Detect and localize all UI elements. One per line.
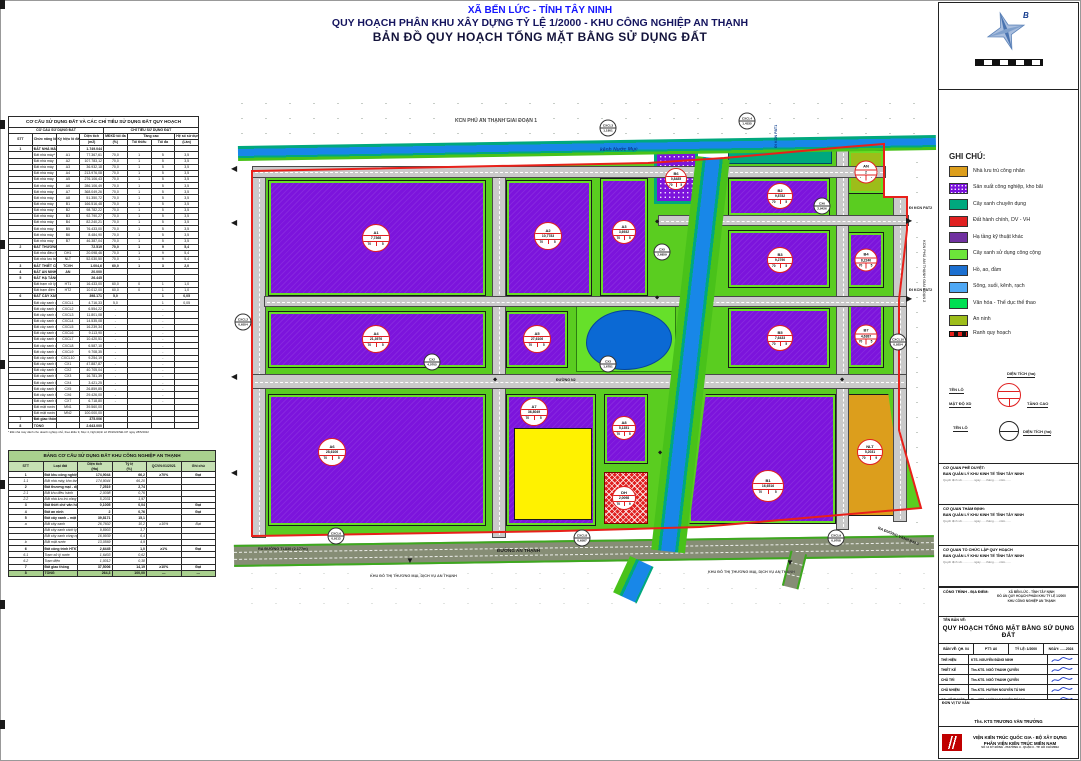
signature-cell bbox=[1048, 675, 1078, 684]
approval-org: BAN QUẢN LÝ KHU KINH TẾ TỈNH TÂY NINH bbox=[943, 472, 1074, 476]
lot-area: 1,6781 bbox=[601, 365, 616, 369]
drawing-meta-row: BẢN VẼ: QH. 04PTT: A0TỶ LỆ: 1/2000NGÀY: … bbox=[938, 643, 1079, 654]
lot-label-nlt: NLT 5,2031 709 bbox=[857, 439, 883, 465]
lot-label-cxcl2: CXCL2 0,6554 bbox=[235, 314, 252, 331]
approval-label: CƠ QUAN THẨM ĐỊNH: bbox=[943, 507, 1074, 511]
plan-sheet: A1 7,7368 705A2 10,7783 705A3 3,6932 705… bbox=[0, 0, 1081, 761]
lot-density-floors: 705 bbox=[521, 416, 547, 420]
legend-swatch bbox=[949, 183, 968, 194]
lot-label-cx6: CX6 2,9426 bbox=[814, 198, 831, 215]
title-project: QUY HOẠCH PHÂN KHU XÂY DỰNG TỶ LỆ 1/2000… bbox=[260, 17, 820, 29]
road-horizontal-north bbox=[252, 166, 886, 178]
title-drawing: BẢN ĐỒ QUY HOẠCH TỔNG MẶT BẰNG SỬ DỤNG Đ… bbox=[260, 30, 820, 44]
institute-box: VIỆN KIẾN TRÚC QUỐC GIA - BỘ XÂY DỰNG PH… bbox=[938, 726, 1079, 759]
signature-row: THIẾT KẾ Ths.KTS. NGÔ THANH QUYỀN bbox=[939, 664, 1078, 674]
lot-area: 0,6554 bbox=[236, 323, 251, 327]
signature-name: Ths.KTS. HUỲNH NGUYỄN TÚ NHI bbox=[969, 685, 1048, 694]
institute-logo-icon bbox=[942, 734, 962, 751]
road-horizontal-mid bbox=[264, 296, 907, 307]
signature-rows: THỂ HIỆN KTS. NGUYỄN ĐĂNG NINH THIẾT KẾ … bbox=[938, 654, 1079, 699]
lot-density-floors: 705 bbox=[535, 240, 561, 244]
lot-area: 2,6859 bbox=[655, 253, 670, 257]
sheet-edge-ticks bbox=[0, 0, 5, 761]
lot-density-floors: 705 bbox=[753, 490, 783, 494]
lot-area: 4,0705 bbox=[425, 363, 440, 367]
lot-label-a6: A6 28,6106 705 bbox=[318, 438, 346, 466]
label-di-kcn-pat2: ĐI KCN PAT2 bbox=[909, 206, 932, 210]
approval-label: CƠ QUAN TỔ CHỨC LẬP QUY HOẠCH bbox=[943, 548, 1074, 552]
legend-swatch bbox=[949, 232, 968, 243]
exit-arrow-icon: ▼ bbox=[786, 558, 794, 567]
approval-box: CƠ QUAN PHÊ DUYỆT: BAN QUẢN LÝ KHU KINH … bbox=[938, 463, 1079, 504]
legend-label: Văn hóa - Thể dục thể thao bbox=[973, 301, 1036, 307]
approval-box: CƠ QUAN TỔ CHỨC LẬP QUY HOẠCH BAN QUẢN L… bbox=[938, 545, 1079, 587]
lot-density-floors: 705 bbox=[363, 242, 389, 246]
signature-role: THIẾT KẾ bbox=[939, 665, 969, 674]
signature-role: THỂ HIỆN bbox=[939, 655, 969, 664]
lot-density-floors: 705 bbox=[666, 183, 686, 187]
lot-density-floors: 705 bbox=[768, 200, 792, 204]
legend-swatch bbox=[949, 315, 968, 326]
parcel-existing-factory bbox=[514, 428, 592, 520]
lot-label-a4: A4 21,3976 705 bbox=[362, 325, 390, 353]
lot-label-cxcl9: CXCL9 0,9708 bbox=[828, 530, 845, 547]
lot-label-dh: DH 2,0098 709 bbox=[612, 486, 636, 510]
legend-label: Đất hành chính, DV - VH bbox=[973, 218, 1030, 224]
institute-text: VIỆN KIẾN TRÚC QUỐC GIA - BỘ XÂY DỰNG PH… bbox=[965, 735, 1075, 749]
lot-label-cx5: CX5 2,6859 bbox=[654, 244, 671, 261]
lot-label-b3: B3 9,2790 705 bbox=[767, 247, 793, 273]
symbol-key-area2-label: DIỆN TÍCH (ha) bbox=[1023, 429, 1051, 436]
road-vertical-boundary-east bbox=[893, 197, 907, 522]
exit-arrow-icon: ▼ bbox=[406, 556, 414, 565]
lot-label-a3: A3 3,6932 705 bbox=[612, 220, 636, 244]
drawing-meta-cell: BẢN VẼ: QH. 04 bbox=[939, 644, 974, 654]
legend-label: Hồ, ao, đầm bbox=[973, 268, 1001, 274]
table2-title: BẢNG CƠ CẤU SỬ DỤNG ĐẤT KHU CÔNG NGHIỆP … bbox=[9, 451, 216, 462]
table1-footnote: * Đất nhà máy dành cho doanh nghiệp nhỏ,… bbox=[8, 430, 199, 434]
symbol-key-lot2-label: TÊN LÔ bbox=[953, 425, 968, 432]
label-kenh-nuoc-muc: kênh Nước Mục bbox=[600, 146, 638, 153]
exit-arrow-icon: ◀ bbox=[231, 468, 237, 477]
lot-label-a5: A5 27,6106 705 bbox=[523, 325, 551, 353]
lot-label-a7: A7 36,8049 705 bbox=[520, 398, 548, 426]
legend-swatch bbox=[949, 216, 968, 227]
lot-density-floors: 709 bbox=[613, 502, 635, 506]
road-vertical-east bbox=[836, 150, 849, 530]
parcel-a6 bbox=[268, 394, 486, 526]
lot-label-b6: B6 0,8485 705 bbox=[665, 168, 687, 190]
approval-dots: Quyết định số:..............ngày.......t… bbox=[943, 519, 1074, 523]
lot-label-cx2: CX2 4,0705 bbox=[424, 354, 441, 371]
lot-label-b4: B4 8,2240 705 bbox=[855, 249, 878, 272]
signature-name: Ths.KTS. NGÔ THANH QUYỀN bbox=[969, 665, 1048, 674]
lot-label-an: AN 2 -- bbox=[855, 161, 878, 184]
lot-area: 2,9426 bbox=[815, 207, 830, 211]
institute-line1: VIỆN KIẾN TRÚC QUỐC GIA - BỘ XÂY DỰNG bbox=[965, 735, 1075, 741]
approval-org: BAN QUẢN LÝ KHU KINH TẾ TỈNH TÂY NINH bbox=[943, 554, 1074, 558]
signature-name: KTS. NGUYỄN ĐĂNG NINH bbox=[969, 655, 1048, 664]
label-di-kcn-pat1: ĐI KCN PAT1 bbox=[774, 125, 778, 148]
lot-density-floors: 705 bbox=[768, 342, 792, 346]
symbol-key-floors-label: TẦNG CAO bbox=[1027, 401, 1048, 408]
drawing-name-box: TÊN BẢN VẼ: QUY HOẠCH TỔNG MẶT BẰNG SỬ D… bbox=[938, 616, 1079, 643]
drawing-meta-cell: TỶ LỆ: 1/2000 bbox=[1009, 644, 1044, 654]
consultant-name: Ths. KTS TRƯƠNG VĂN TRƯỞNG bbox=[939, 719, 1078, 724]
lot-density-floors: 705 bbox=[613, 236, 635, 240]
land-structure-table: BẢNG CƠ CẤU SỬ DỤNG ĐẤT KHU CÔNG NGHIỆP … bbox=[8, 450, 216, 577]
lot-label-a2: A2 10,7783 705 bbox=[534, 222, 562, 250]
signature bbox=[1050, 656, 1074, 664]
legend-item: Sản xuất công nghiệp, kho bãi bbox=[949, 183, 1070, 194]
signature-cell bbox=[1048, 665, 1078, 674]
consultant-label: ĐƠN VỊ TƯ VẤN bbox=[939, 700, 1078, 706]
lot-label-b7: B7 4,6387 705 bbox=[855, 325, 878, 348]
signature bbox=[1050, 686, 1074, 694]
signature-role: CHỦ TRÌ bbox=[939, 675, 969, 684]
approval-label: CƠ QUAN PHÊ DUYỆT: bbox=[943, 466, 1074, 470]
table-row: 8TỔNG264,3 100,00—— bbox=[9, 570, 216, 576]
drawing-meta-cell: PTT: A0 bbox=[974, 644, 1009, 654]
road-vertical-d2 bbox=[492, 168, 506, 538]
signature-row: CHỦ NHIỆM Ths.KTS. HUỲNH NGUYỄN TÚ NHI bbox=[939, 684, 1078, 694]
lot-density-floors: 705 bbox=[768, 264, 792, 268]
symbol-key-density-label: MẬT ĐỘ XD bbox=[949, 401, 971, 408]
lot-symbol-example bbox=[997, 383, 1021, 407]
label-khu-do-thi-2: KHU ĐÔ THỊ THƯƠNG MẠI, DỊCH VỤ AN THẠNH bbox=[708, 570, 795, 574]
title-commune: XÃ BẾN LỨC - TỈNH TÂY NINH bbox=[260, 5, 820, 16]
lot-density-floors: 705 bbox=[856, 264, 877, 268]
legend-label: Cây xanh chuyên dụng bbox=[973, 202, 1026, 208]
project-box: CÔNG TRÌNH - ĐỊA ĐIỂM: XÃ BẾN LỨC - TỈNH… bbox=[938, 587, 1079, 616]
label-khu-do-thi-1: KHU ĐÔ THỊ THƯƠNG MẠI, DỊCH VỤ AN THẠNH bbox=[370, 574, 457, 578]
right-column: B GHI CHÚ: Nhà lưu trú công nhânSản xuất… bbox=[938, 2, 1079, 759]
signature bbox=[1050, 666, 1074, 674]
exit-arrow-icon: ▶ bbox=[906, 294, 912, 303]
lot-area: 0,9113 bbox=[329, 537, 344, 541]
drawing-name: QUY HOẠCH TỔNG MẶT BẰNG SỬ DỤNG ĐẤT bbox=[939, 623, 1078, 642]
approval-dots: Quyết định số:..............ngày.......t… bbox=[943, 560, 1074, 564]
approval-dots: Quyết định số:..............ngày.......t… bbox=[943, 478, 1074, 482]
lot-label-b2: B2 9,8782 705 bbox=[767, 183, 793, 209]
legend-label: Sản xuất công nghiệp, kho bãi bbox=[973, 185, 1043, 191]
lot-label-cxcl10: CXCL10 0,9254 bbox=[890, 334, 907, 351]
institute-line3: SỐ 14 KỲ ĐỒNG - PHƯỜNG 9 - QUẬN 3 - TP. … bbox=[965, 746, 1075, 749]
label-duong-an-thanh: ĐƯỜNG AN THẠNH bbox=[497, 548, 540, 553]
legend-items: Nhà lưu trú công nhânSản xuất công nghiệ… bbox=[949, 166, 1070, 337]
signature-row: THỂ HIỆN KTS. NGUYỄN ĐĂNG NINH bbox=[939, 654, 1078, 664]
lot-label-b1: B1 16,6516 705 bbox=[752, 470, 784, 502]
label-kcn-phu-an-thanh-gd1: KCN PHÚ AN THẠNH GIAI ĐOẠN 1 bbox=[455, 118, 537, 124]
lot-label-cxcl8: CXCL8 0,6587 bbox=[574, 530, 591, 547]
lot-density-floors: 709 bbox=[858, 456, 882, 460]
project-lines: XÃ BẾN LỨC - TỈNH TÂY NINHĐỒ ÁN QUY HOẠC… bbox=[989, 590, 1074, 614]
lot-area: 1,1801 bbox=[601, 129, 616, 133]
legend-label: Ranh quy hoạch bbox=[973, 331, 1011, 337]
label-duong-n2: ĐƯỜNG N2 bbox=[556, 378, 576, 382]
legend-swatch bbox=[949, 298, 968, 309]
lot-area: 0,6587 bbox=[575, 539, 590, 543]
signature-name: Ths.KTS. NGÔ THANH QUYỀN bbox=[969, 675, 1048, 684]
lot-symbol-key: DIỆN TÍCH (ha) TÊN LÔ MẬT ĐỘ XD TẦNG CAO… bbox=[949, 371, 1070, 443]
lot-density-floors: 705 bbox=[363, 343, 389, 347]
lot-label-cxcl6: CXCL6 0,9113 bbox=[328, 528, 345, 545]
lot-density-floors: 705 bbox=[856, 340, 877, 344]
legend-swatch bbox=[949, 199, 968, 210]
land-use-indicator-table: CƠ CẤU SỬ DỤNG ĐẤT VÀ CÁC CHỈ TIÊU SỬ DỤ… bbox=[8, 116, 199, 434]
legend-item: Cây xanh chuyên dụng bbox=[949, 199, 1070, 210]
road-marker-icon: ⬥ bbox=[655, 295, 659, 302]
exit-arrow-icon: ◀ bbox=[231, 218, 237, 227]
legend-item: Văn hóa - Thể dục thể thao bbox=[949, 298, 1070, 309]
table1-title: CƠ CẤU SỬ DỤNG ĐẤT VÀ CÁC CHỈ TIÊU SỬ DỤ… bbox=[9, 117, 199, 128]
legend-item: Hồ, ao, đầm bbox=[949, 265, 1070, 276]
legend-item: Hạ tầng kỹ thuật khác bbox=[949, 232, 1070, 243]
legend-label: An ninh bbox=[973, 317, 991, 323]
road-marker-icon: ⬥ bbox=[840, 377, 844, 384]
legend-item: An ninh bbox=[949, 315, 1070, 326]
lot-density-floors: 705 bbox=[613, 432, 635, 436]
legend-swatch bbox=[949, 249, 968, 260]
legend-label: Hạ tầng kỹ thuật khác bbox=[973, 235, 1023, 241]
legend-item: Ranh quy hoạch bbox=[949, 331, 1070, 337]
exit-arrow-icon: ◀ bbox=[231, 164, 237, 173]
label-di-kcn-pat2: ĐI KCN PAT2 bbox=[909, 288, 932, 292]
legend-swatch bbox=[949, 331, 968, 337]
signature-cell bbox=[1048, 655, 1078, 664]
project-label: CÔNG TRÌNH - ĐỊA ĐIỂM: bbox=[943, 590, 989, 614]
exit-arrow-icon: ▶ bbox=[906, 216, 912, 225]
compass-box: B bbox=[938, 2, 1079, 89]
lot-label-cxcl3: CXCL3 1,1801 bbox=[600, 120, 617, 137]
lot-area: 1,4535 bbox=[740, 122, 755, 126]
green-lot-symbol-example bbox=[999, 421, 1019, 441]
legend-item: Đất hành chính, DV - VH bbox=[949, 216, 1070, 227]
lot-density-floors: 705 bbox=[319, 456, 345, 460]
lot-density-floors: -- bbox=[856, 176, 877, 180]
legend-item: Nhà lưu trú công nhân bbox=[949, 166, 1070, 177]
legend-label: Sông, suối, kênh, rạch bbox=[973, 284, 1025, 290]
lot-area: 0,9254 bbox=[891, 343, 906, 347]
table-row: 8TỔNG 2.643.000 bbox=[9, 423, 199, 429]
consultant-box: ĐƠN VỊ TƯ VẤN Ths. KTS TRƯƠNG VĂN TRƯỞNG bbox=[938, 699, 1079, 726]
lot-label-a8: A8 5,1351 705 bbox=[612, 416, 636, 440]
exit-arrow-icon: ◀ bbox=[231, 372, 237, 381]
signature-cell bbox=[1048, 685, 1078, 694]
symbol-key-area-label: DIỆN TÍCH (ha) bbox=[1007, 371, 1035, 378]
north-label: B bbox=[1023, 11, 1029, 20]
project-line: KHU CÔNG NGHIỆP AN THẠNH bbox=[989, 599, 1074, 603]
legend-title: GHI CHÚ: bbox=[949, 152, 1070, 161]
label-ra-duong-tl830: RA ĐƯỜNG TL830 (2.177m) bbox=[258, 547, 308, 551]
scale-bar bbox=[975, 59, 1043, 66]
legend-label: Cây xanh sử dụng công cộng bbox=[973, 251, 1041, 257]
label-kcn-phu-an-thanh-gd2: KCN PHÚ AN THẠNH GIAI ĐOẠN 2 bbox=[922, 240, 926, 302]
signature-role: CHỦ NHIỆM bbox=[939, 685, 969, 694]
legend-label: Nhà lưu trú công nhân bbox=[973, 169, 1025, 175]
legend-item: Sông, suối, kênh, rạch bbox=[949, 282, 1070, 293]
drawing-meta-cell: NGÀY: ......2024 bbox=[1044, 644, 1078, 654]
road-marker-icon: ⬥ bbox=[493, 377, 497, 384]
road-marker-icon: ⬥ bbox=[655, 219, 659, 226]
legend-swatch bbox=[949, 166, 968, 177]
approval-boxes: CƠ QUAN PHÊ DUYỆT: BAN QUẢN LÝ KHU KINH … bbox=[938, 463, 1079, 587]
road-vertical-west bbox=[252, 171, 266, 538]
sheet-title: XÃ BẾN LỨC - TỈNH TÂY NINH QUY HOẠCH PHÂ… bbox=[260, 5, 820, 44]
signature bbox=[1050, 676, 1074, 684]
lot-label-b5: B5 7,6433 705 bbox=[767, 325, 793, 351]
lot-area: 0,9708 bbox=[829, 539, 844, 543]
legend-swatch bbox=[949, 282, 968, 293]
legend: GHI CHÚ: Nhà lưu trú công nhânSản xuất c… bbox=[938, 89, 1079, 463]
signature-row: CHỦ TRÌ Ths.KTS. NGÔ THANH QUYỀN bbox=[939, 674, 1078, 684]
lot-label-cxcl4: CXCL4 1,4535 bbox=[739, 113, 756, 130]
road-duong-n2 bbox=[252, 374, 907, 389]
approval-box: CƠ QUAN THẨM ĐỊNH: BAN QUẢN LÝ KHU KINH … bbox=[938, 504, 1079, 545]
legend-swatch bbox=[949, 265, 968, 276]
lot-label-a1: A1 7,7368 705 bbox=[362, 224, 390, 252]
legend-item: Cây xanh sử dụng công cộng bbox=[949, 249, 1070, 260]
symbol-key-lot-label: TÊN LÔ bbox=[949, 387, 964, 394]
lot-label-cx3: CX3 1,6781 bbox=[600, 356, 617, 373]
approval-org: BAN QUẢN LÝ KHU KINH TẾ TỈNH TÂY NINH bbox=[943, 513, 1074, 517]
parcel-b1 bbox=[688, 394, 836, 524]
lot-density-floors: 705 bbox=[524, 343, 550, 347]
road-marker-icon: ⬥ bbox=[658, 450, 662, 457]
